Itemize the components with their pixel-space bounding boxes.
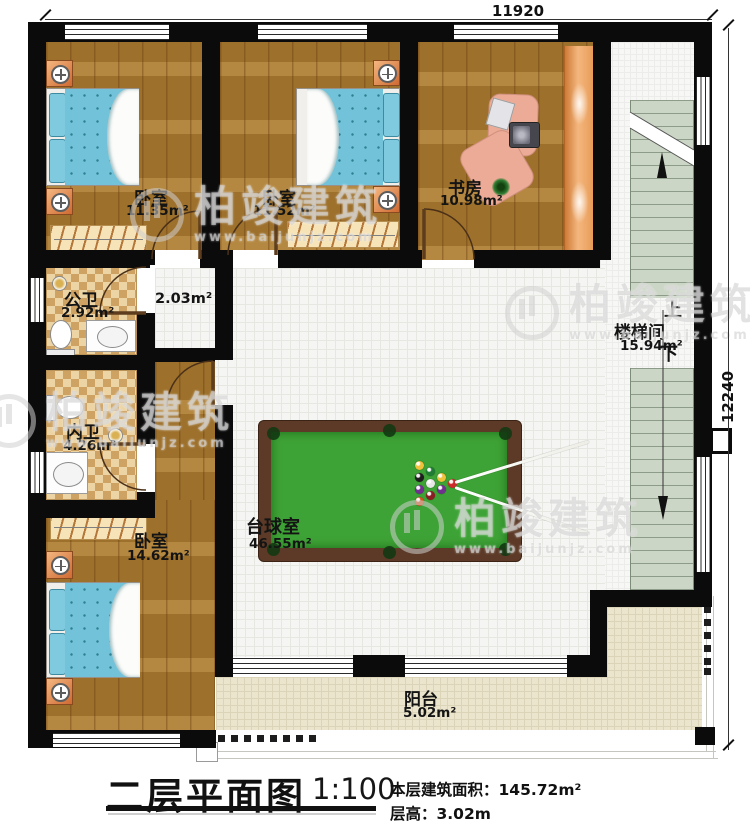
room-area-bedroom-3: 14.62m² (127, 548, 190, 564)
stairs-down-label: 下 (660, 340, 678, 366)
room-area-study: 10.98m² (440, 193, 503, 209)
room-area-inner-bath: 4.26m² (63, 438, 116, 454)
room-area-public-bath: 2.92m² (61, 305, 114, 321)
dimension-right-value: 12240 (719, 367, 737, 427)
dimension-line-top (45, 19, 712, 20)
room-area-bedroom-1: 11.35m² (126, 203, 189, 219)
floor-plan: 卧室 11.35m² 卧室 11.52m² 书房 10.98m² 公卫 2.92… (0, 0, 750, 831)
floor-height-note: 层高：3.02m (390, 802, 491, 824)
title-underline (106, 806, 376, 811)
building-area-note: 本层建筑面积：145.72m² (390, 778, 581, 800)
door-leaf (100, 207, 424, 444)
page-title: 二层平面图 (106, 766, 306, 820)
room-area-bedroom-2: 11.52m² (253, 203, 316, 219)
doors-and-stairs-overlay (0, 0, 750, 762)
dimension-top-value: 11920 (488, 2, 548, 20)
title-underline-shadow (108, 813, 376, 815)
hall-area-label: 2.03m² (155, 291, 212, 307)
stairs-up-label: 上 (664, 296, 682, 322)
door-arc (100, 207, 474, 490)
stairs-up-arrow-icon (657, 152, 667, 178)
room-area-billiard: 46.55m² (249, 536, 312, 552)
room-area-balcony: 5.02m² (403, 705, 456, 721)
stairs-down-arrow-icon (658, 496, 668, 520)
drawing-scale: 1:100 (312, 772, 396, 806)
